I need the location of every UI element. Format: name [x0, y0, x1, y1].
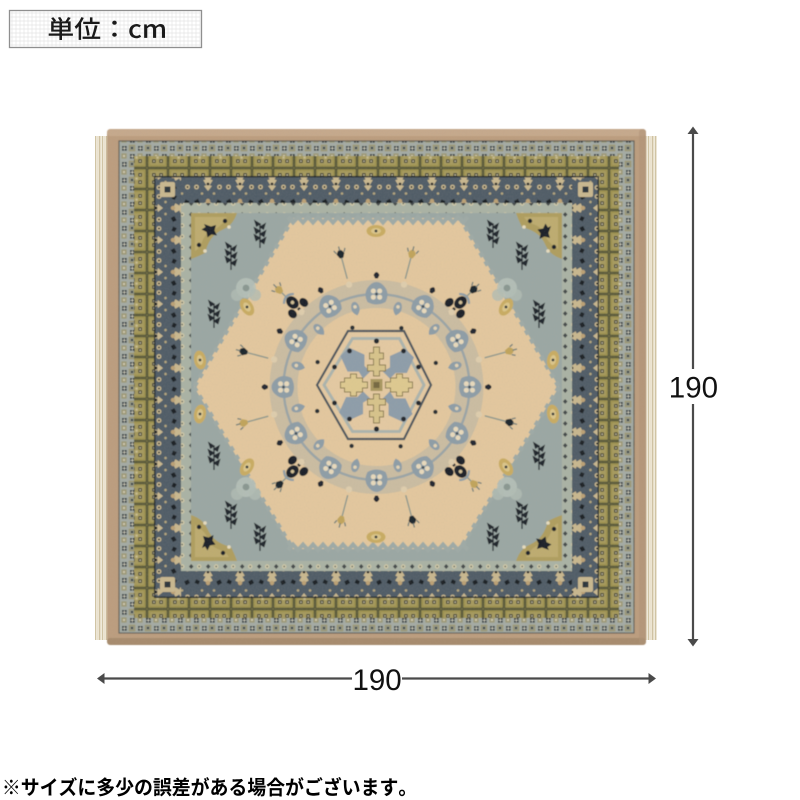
svg-text:190: 190: [352, 664, 401, 697]
svg-text:190: 190: [669, 371, 718, 404]
